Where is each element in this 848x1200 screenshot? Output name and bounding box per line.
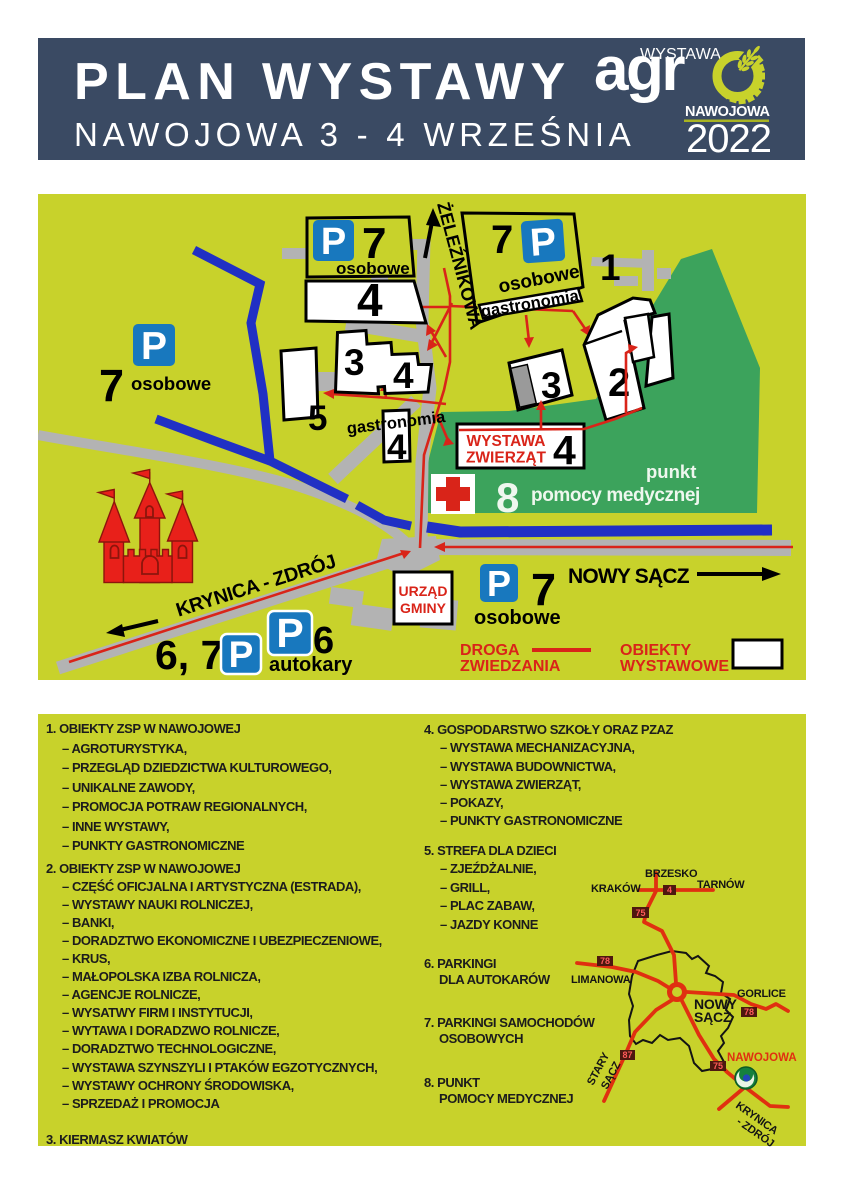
svg-text:78: 78 (600, 956, 610, 966)
svg-text:KRAKÓW: KRAKÓW (591, 882, 641, 895)
svg-text:BRZESKO: BRZESKO (645, 868, 698, 880)
svg-text:78: 78 (744, 1007, 754, 1017)
svg-text:P: P (276, 610, 303, 656)
svg-text:4: 4 (667, 885, 672, 895)
svg-text:URZĄD: URZĄD (399, 583, 448, 599)
svg-text:punkt: punkt (646, 461, 696, 482)
svg-text:P: P (529, 220, 558, 265)
svg-text:4: 4 (553, 427, 576, 473)
svg-text:P: P (321, 221, 346, 263)
svg-text:ZWIEDZANIA: ZWIEDZANIA (460, 658, 561, 675)
svg-text:TARNÓW: TARNÓW (697, 878, 745, 891)
svg-text:7: 7 (491, 218, 513, 262)
svg-text:NAWOJOWA: NAWOJOWA (727, 1052, 797, 1064)
svg-text:4: 4 (393, 355, 414, 396)
svg-text:75: 75 (635, 908, 645, 918)
svg-text:1: 1 (600, 247, 621, 288)
svg-text:P: P (141, 325, 167, 368)
svg-text:P: P (487, 563, 511, 604)
svg-text:5: 5 (308, 399, 327, 438)
svg-text:LIMANOWA: LIMANOWA (571, 974, 631, 986)
svg-text:8: 8 (496, 474, 519, 521)
svg-text:osobowe: osobowe (131, 373, 211, 394)
svg-text:OBIEKTY: OBIEKTY (620, 642, 691, 659)
svg-text:87: 87 (622, 1050, 632, 1060)
svg-text:7: 7 (99, 360, 124, 411)
svg-text:WYSTAWA: WYSTAWA (467, 433, 546, 450)
svg-text:agr: agr (594, 38, 685, 104)
svg-text:SĄCZ: SĄCZ (694, 1009, 732, 1025)
svg-text:3: 3 (541, 365, 562, 406)
svg-text:NOWY SĄCZ: NOWY SĄCZ (568, 565, 690, 588)
svg-text:autokary: autokary (269, 654, 353, 676)
svg-text:4: 4 (357, 274, 383, 326)
svg-text:osobowe: osobowe (474, 607, 561, 629)
svg-text:P: P (229, 634, 254, 675)
svg-text:GMINY: GMINY (400, 600, 447, 616)
svg-text:3: 3 (344, 342, 365, 383)
svg-text:pomocy medycznej: pomocy medycznej (531, 485, 700, 506)
svg-text:GORLICE: GORLICE (737, 988, 786, 1000)
svg-text:DROGA: DROGA (460, 642, 520, 659)
svg-text:4: 4 (387, 428, 407, 467)
svg-text:ZWIERZĄT: ZWIERZĄT (466, 450, 547, 467)
svg-text:2022: 2022 (686, 117, 771, 160)
svg-text:WYSTAWOWE: WYSTAWOWE (620, 658, 729, 675)
svg-text:75: 75 (713, 1061, 723, 1071)
svg-text:6, 7: 6, 7 (155, 632, 223, 678)
